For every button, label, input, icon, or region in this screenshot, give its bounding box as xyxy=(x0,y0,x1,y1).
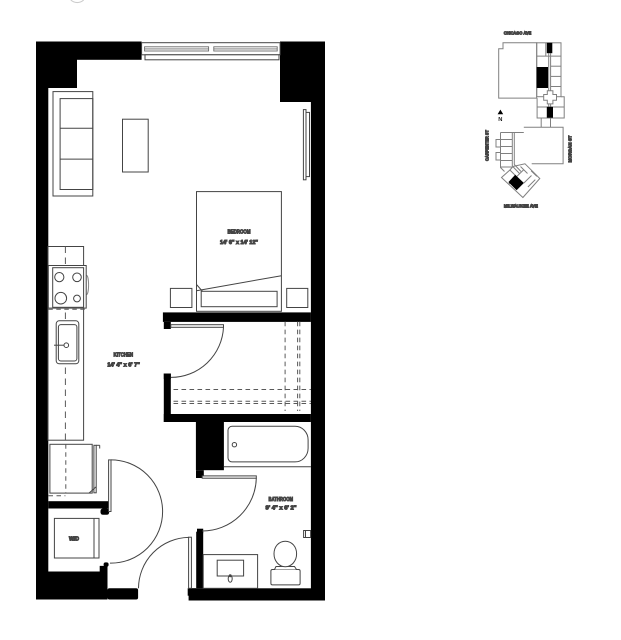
svg-text:14' 6" x 14' 12": 14' 6" x 14' 12" xyxy=(220,240,258,246)
svg-text:MORGAN ST: MORGAN ST xyxy=(568,135,574,162)
svg-text:BATHROOM: BATHROOM xyxy=(269,497,294,503)
svg-text:W/D: W/D xyxy=(69,536,79,542)
svg-text:MILWAUKEE AVE: MILWAUKEE AVE xyxy=(504,204,539,210)
svg-text:9' 4" x 6' 2": 9' 4" x 6' 2" xyxy=(266,506,297,512)
svg-text:CHICAGO AVE: CHICAGO AVE xyxy=(504,31,532,37)
svg-text:BEDROOM: BEDROOM xyxy=(228,230,251,236)
svg-text:KITCHEN: KITCHEN xyxy=(114,353,134,359)
svg-text:CARPENTER ST: CARPENTER ST xyxy=(485,130,491,161)
svg-text:14' 4" x 6' 7": 14' 4" x 6' 7" xyxy=(107,362,140,368)
svg-text:N: N xyxy=(498,117,502,123)
